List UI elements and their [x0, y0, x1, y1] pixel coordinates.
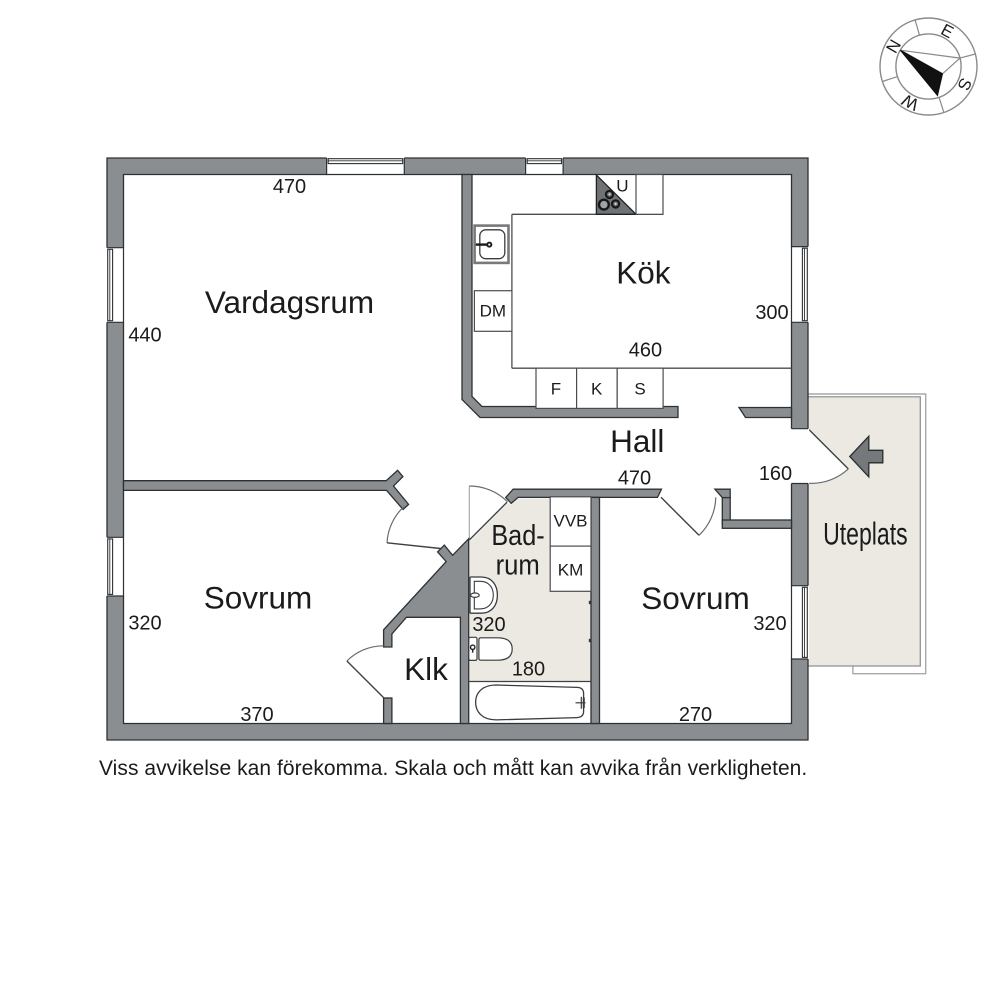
- svg-text:Vardagsrum: Vardagsrum: [205, 284, 374, 320]
- svg-text:Hall: Hall: [610, 423, 664, 459]
- svg-text:300: 300: [755, 302, 788, 324]
- svg-text:320: 320: [472, 614, 505, 636]
- svg-text:Bad-: Bad-: [491, 520, 544, 552]
- svg-text:S: S: [634, 380, 645, 399]
- svg-text:VVB: VVB: [553, 512, 587, 531]
- svg-text:370: 370: [240, 704, 273, 726]
- svg-text:Sovrum: Sovrum: [204, 580, 313, 616]
- svg-text:Kök: Kök: [616, 255, 671, 291]
- svg-text:KM: KM: [558, 561, 584, 580]
- svg-text:470: 470: [273, 176, 306, 198]
- svg-text:Viss avvikelse kan förekomma.: Viss avvikelse kan förekomma. Skala och …: [99, 757, 807, 780]
- svg-text:470: 470: [618, 468, 651, 490]
- svg-text:K: K: [591, 380, 603, 399]
- svg-text:Klk: Klk: [404, 651, 448, 687]
- svg-text:180: 180: [512, 659, 545, 681]
- svg-text:320: 320: [753, 613, 786, 635]
- svg-text:Sovrum: Sovrum: [641, 580, 750, 616]
- svg-text:270: 270: [679, 704, 712, 726]
- svg-text:DM: DM: [480, 302, 506, 321]
- svg-text:rum: rum: [496, 550, 540, 582]
- svg-text:320: 320: [128, 613, 161, 635]
- svg-text:160: 160: [759, 463, 792, 485]
- svg-text:460: 460: [629, 340, 662, 362]
- svg-text:F: F: [551, 380, 561, 399]
- svg-text:440: 440: [128, 325, 161, 347]
- svg-text:U: U: [616, 177, 628, 196]
- svg-text:Uteplats: Uteplats: [823, 516, 908, 552]
